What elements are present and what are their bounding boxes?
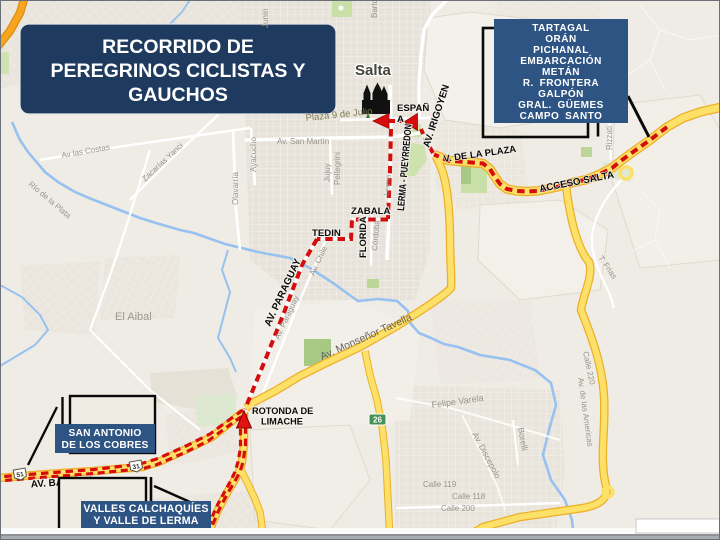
svg-text:SAN ANTONIO: SAN ANTONIO: [69, 428, 142, 439]
svg-text:26: 26: [373, 416, 382, 425]
svg-text:PEREGRINOS CICLISTAS Y: PEREGRINOS CICLISTAS Y: [51, 60, 306, 82]
svg-text:ROTONDA DE: ROTONDA DE: [252, 406, 313, 416]
svg-text:Salta: Salta: [355, 62, 392, 79]
svg-text:PICHANAL: PICHANAL: [533, 45, 589, 56]
svg-text:DE LOS COBRES: DE LOS COBRES: [62, 440, 149, 451]
svg-text:Calle 118: Calle 118: [452, 492, 486, 501]
svg-text:Bartolomé: Bartolomé: [370, 0, 379, 18]
svg-text:Y VALLE DE LERMA: Y VALLE DE LERMA: [93, 515, 198, 527]
svg-text:Jujuy: Jujuy: [323, 163, 332, 182]
svg-text:Av. San Martín: Av. San Martín: [277, 137, 329, 146]
svg-text:LIMACHE: LIMACHE: [261, 417, 303, 427]
svg-text:Lerma: Lerma: [382, 173, 393, 196]
svg-text:FLORIDA: FLORIDA: [357, 216, 368, 258]
svg-text:Calle 119: Calle 119: [423, 480, 457, 489]
svg-text:TARTAGAL: TARTAGAL: [532, 23, 590, 34]
svg-text:GRAL. GÜEMES: GRAL. GÜEMES: [518, 98, 604, 111]
svg-text:ORÁN: ORÁN: [545, 32, 576, 45]
svg-text:EMBARCACIÓN: EMBARCACIÓN: [520, 54, 602, 67]
svg-text:Rizzati: Rizzati: [605, 126, 614, 150]
svg-text:CAMPO SANTO: CAMPO SANTO: [520, 111, 603, 122]
svg-text:VALLES CALCHAQUÍES: VALLES CALCHAQUÍES: [83, 502, 208, 515]
svg-text:ZABALA: ZABALA: [351, 206, 391, 217]
svg-text:Junín: Junín: [261, 8, 270, 28]
svg-text:TEDIN: TEDIN: [312, 228, 341, 239]
svg-text:RECORRIDO DE: RECORRIDO DE: [102, 36, 254, 58]
svg-text:GAUCHOS: GAUCHOS: [128, 84, 228, 106]
svg-text:METÁN: METÁN: [542, 65, 580, 78]
svg-text:GALPÓN: GALPÓN: [538, 87, 584, 100]
svg-text:Olavarría: Olavarría: [231, 172, 240, 205]
svg-text:ESPAÑ: ESPAÑ: [397, 103, 429, 114]
svg-text:Pellegrini: Pellegrini: [333, 152, 342, 185]
svg-text:El Aibal: El Aibal: [115, 311, 152, 323]
svg-text:R. FRONTERA: R. FRONTERA: [523, 78, 599, 89]
svg-text:A: A: [397, 114, 404, 125]
svg-text:Ayacucho: Ayacucho: [249, 136, 258, 172]
svg-text:Calle 200: Calle 200: [441, 504, 475, 513]
